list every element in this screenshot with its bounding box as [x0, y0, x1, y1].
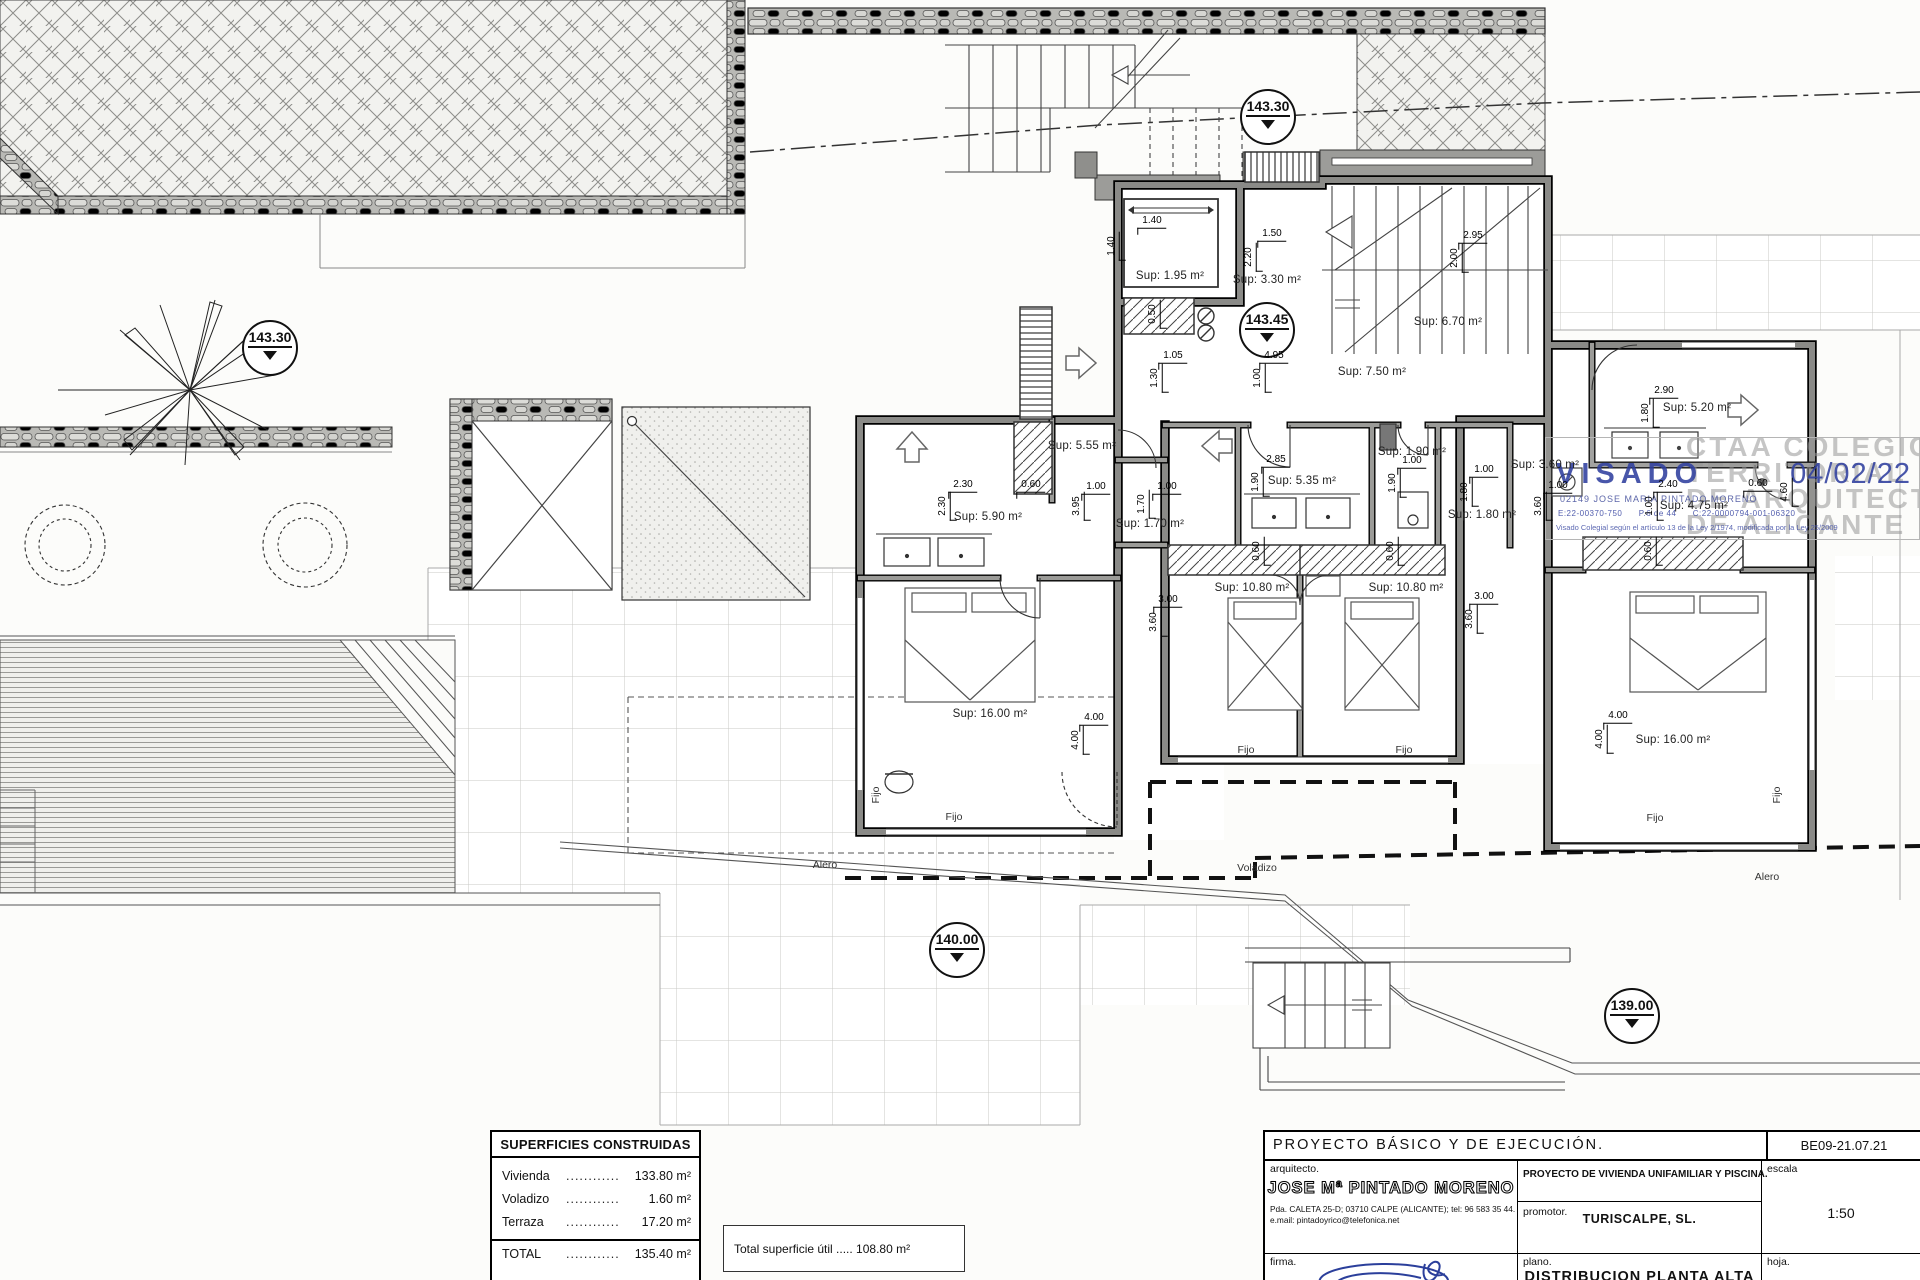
plan-annotation: Fijo	[1647, 812, 1664, 824]
dimension-label: 1.40	[1137, 216, 1166, 229]
level-marker: 143.30	[242, 320, 298, 376]
dimension-label: 1.80	[1460, 477, 1473, 506]
dimension-label: 1.00	[1081, 482, 1110, 495]
plan-annotation: Fijo	[1238, 744, 1255, 756]
dimension-label: 1.40	[1107, 231, 1120, 260]
room-area-label: Sup: 10.80 m²	[1215, 582, 1290, 594]
level-arrow-icon	[1625, 1019, 1639, 1028]
level-arrow-icon	[1261, 120, 1275, 129]
level-arrow-icon	[1260, 333, 1274, 342]
blueprint-sheet: CTAA COLEGIO TERRITORIAL DE ARQUITECTOS …	[0, 0, 1920, 1280]
dimension-label: 4.00	[1071, 725, 1084, 754]
dimension-label: 0.60	[1743, 479, 1772, 492]
dimension-label: 1.30	[1150, 363, 1163, 392]
dimension-label: 2.40	[1653, 480, 1682, 493]
dimension-label: 0.50	[1148, 299, 1161, 328]
dimension-label: 1.00	[1152, 482, 1181, 495]
plan-annotation: Fijo	[870, 787, 882, 804]
room-area-label: Sup: 1.70 m²	[1116, 518, 1184, 530]
plan-annotation: Fijo	[1396, 744, 1413, 756]
dimension-label: 1.50	[1257, 229, 1286, 242]
level-arrow-icon	[950, 953, 964, 962]
room-area-label: Sup: 3.30 m²	[1233, 274, 1301, 286]
dimension-label: 1.00	[1645, 491, 1658, 520]
room-area-label: Sup: 5.55 m²	[1048, 440, 1116, 452]
plan-annotation: Fijo	[946, 811, 963, 823]
dimension-label: 0.60	[1386, 536, 1399, 565]
room-area-label: Sup: 16.00 m²	[953, 708, 1028, 720]
dimension-label: 2.85	[1261, 455, 1290, 468]
dimension-label: 1.05	[1158, 351, 1187, 364]
dimension-label: 1.00	[1543, 481, 1572, 494]
dimension-label: 1.80	[1641, 398, 1654, 427]
level-marker: 140.00	[929, 922, 985, 978]
dimension-label: 4.60	[1780, 477, 1793, 506]
dimension-label: 1.00	[1253, 363, 1266, 392]
dimension-label: 0.60	[1644, 536, 1657, 565]
dimension-label: 0.60	[1016, 480, 1045, 493]
dimension-label: 1.00	[1469, 465, 1498, 478]
level-arrow-icon	[263, 351, 277, 360]
room-area-label: Sup: 6.70 m²	[1414, 316, 1482, 328]
dimension-label: 2.30	[938, 491, 951, 520]
dimension-label: 4.95	[1259, 351, 1288, 364]
dimension-label: 3.60	[1465, 604, 1478, 633]
dimension-label: 1.90	[1251, 467, 1264, 496]
room-area-label: Sup: 4.75 m²	[1660, 500, 1728, 512]
dimension-label: 4.00	[1603, 711, 1632, 724]
room-area-label: Sup: 5.35 m²	[1268, 475, 1336, 487]
dimension-label: 2.00	[1450, 243, 1463, 272]
dimension-label: 1.00	[1397, 456, 1426, 469]
room-area-label: Sup: 1.80 m²	[1448, 509, 1516, 521]
dimension-label: 3.60	[1534, 491, 1547, 520]
room-area-label: Sup: 16.00 m²	[1636, 734, 1711, 746]
plan-annotation: Voladizo	[1237, 862, 1277, 874]
dimension-label: 2.30	[948, 480, 977, 493]
dimension-label: 0.60	[1252, 536, 1265, 565]
plan-annotation: Alero	[1755, 871, 1780, 883]
plan-annotation: Alero	[813, 859, 838, 871]
dimension-label: 2.95	[1458, 231, 1487, 244]
room-area-label: Sup: 5.90 m²	[954, 511, 1022, 523]
room-area-label: Sup: 3.60 m²	[1511, 459, 1579, 471]
dimension-label: 1.90	[1388, 468, 1401, 497]
level-marker: 143.30	[1240, 89, 1296, 145]
dimension-label: 2.90	[1649, 386, 1678, 399]
dimension-label: 2.20	[1244, 242, 1257, 271]
dimension-label: 3.00	[1153, 595, 1182, 608]
dimension-label: 3.00	[1469, 592, 1498, 605]
room-area-label: Sup: 5.20 m²	[1663, 402, 1731, 414]
room-area-label: Sup: 10.80 m²	[1369, 582, 1444, 594]
label-overlay: 143.30 143.45 143.30 140.00 139.00 Sup: …	[0, 0, 1920, 1280]
dimension-label: 1.70	[1137, 489, 1150, 518]
plan-annotation: Fijo	[1771, 787, 1783, 804]
dimension-label: 3.60	[1149, 607, 1162, 636]
room-area-label: Sup: 1.95 m²	[1136, 270, 1204, 282]
room-area-label: Sup: 7.50 m²	[1338, 366, 1406, 378]
level-marker: 139.00	[1604, 988, 1660, 1044]
dimension-label: 4.00	[1595, 724, 1608, 753]
dimension-label: 4.00	[1079, 713, 1108, 726]
